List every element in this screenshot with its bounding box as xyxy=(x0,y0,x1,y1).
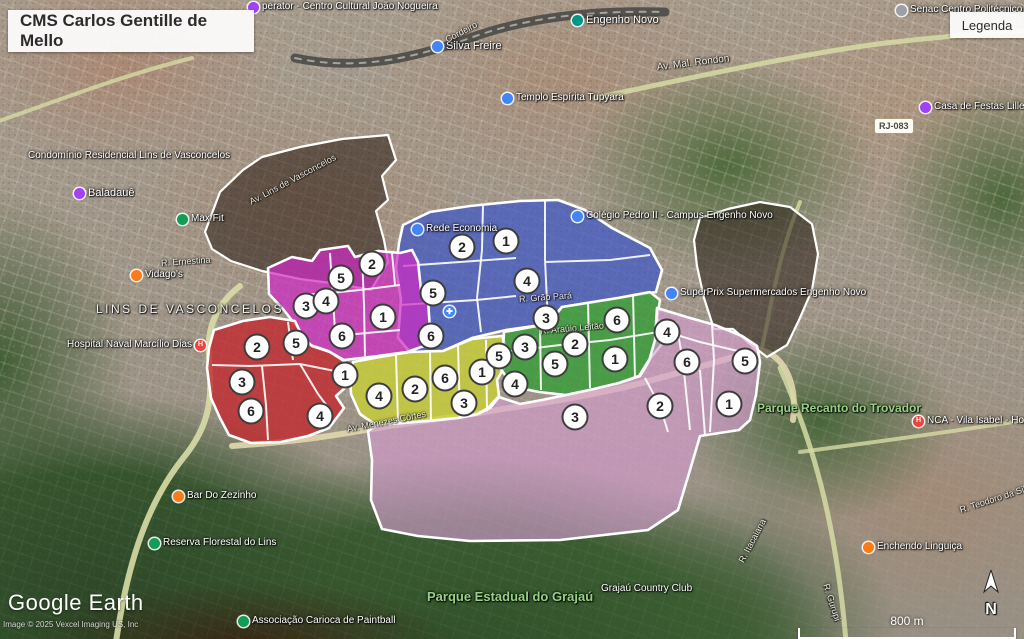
zone-number: 2 xyxy=(571,336,579,352)
zone-marker-green-4[interactable]: 4 xyxy=(503,372,528,397)
zone-marker-green-6[interactable]: 6 xyxy=(605,308,630,333)
zone-marker-pink-6[interactable]: 6 xyxy=(675,350,700,375)
zone-number: 2 xyxy=(656,398,664,414)
zone-number: 3 xyxy=(302,298,310,314)
zone-marker-red-1[interactable]: 1 xyxy=(333,363,358,388)
zone-number: 6 xyxy=(427,328,435,344)
zone-marker-blue-1[interactable]: 1 xyxy=(494,229,519,254)
zone-number: 2 xyxy=(411,381,419,397)
north-arrow[interactable]: N xyxy=(978,570,1004,619)
zone-marker-pink-2[interactable]: 2 xyxy=(648,394,673,419)
zone-marker-magenta-2[interactable]: 2 xyxy=(360,252,385,277)
zone-number: 1 xyxy=(379,309,387,325)
north-label: N xyxy=(978,601,1004,619)
legend-button[interactable]: Legenda xyxy=(950,12,1024,38)
zone-number: 4 xyxy=(375,388,383,404)
zone-number: 4 xyxy=(663,324,671,340)
zone-marker-red-6[interactable]: 6 xyxy=(239,399,264,424)
zone-number: 1 xyxy=(502,233,510,249)
zone-marker-yellow-2[interactable]: 2 xyxy=(403,377,428,402)
logo-earth: Earth xyxy=(89,590,144,615)
zone-marker-blue-5[interactable]: 5 xyxy=(421,281,446,306)
zone-number: 6 xyxy=(683,354,691,370)
map-title: CMS Carlos Gentille de Mello xyxy=(8,10,254,52)
scale-bar-bracket xyxy=(798,628,1016,639)
zone-marker-green-1[interactable]: 1 xyxy=(603,347,628,372)
zone-markers-layer: 123456123456123456123456123456123456 xyxy=(0,0,1024,639)
zone-number: 5 xyxy=(495,348,503,364)
zone-number: 2 xyxy=(458,239,466,255)
google-earth-logo: Google Earth xyxy=(8,590,144,616)
zone-number: 1 xyxy=(341,367,349,383)
zone-number: 6 xyxy=(441,370,449,386)
zone-number: 3 xyxy=(238,374,246,390)
zone-number: 3 xyxy=(521,339,529,355)
zone-marker-pink-1[interactable]: 1 xyxy=(717,392,742,417)
zone-number: 5 xyxy=(292,335,300,351)
zone-marker-pink-3[interactable]: 3 xyxy=(563,405,588,430)
zone-marker-green-2[interactable]: 2 xyxy=(563,332,588,357)
zone-marker-red-4[interactable]: 4 xyxy=(308,404,333,429)
zone-number: 5 xyxy=(429,285,437,301)
zone-number: 4 xyxy=(322,293,330,309)
zone-marker-blue-3[interactable]: 3 xyxy=(534,306,559,331)
zone-number: 3 xyxy=(542,310,550,326)
zone-marker-magenta-4[interactable]: 4 xyxy=(314,289,339,314)
satellite-map[interactable]: perator - Centro Cultural João NogueiraS… xyxy=(0,0,1024,639)
zone-number: 2 xyxy=(253,339,261,355)
zone-number: 6 xyxy=(338,328,346,344)
logo-google: Google xyxy=(8,590,82,615)
zone-marker-red-2[interactable]: 2 xyxy=(245,335,270,360)
zone-number: 5 xyxy=(741,353,749,369)
zone-marker-magenta-1[interactable]: 1 xyxy=(371,305,396,330)
zone-marker-pink-4[interactable]: 4 xyxy=(655,320,680,345)
zone-number: 4 xyxy=(523,273,531,289)
zone-marker-yellow-5[interactable]: 5 xyxy=(487,344,512,369)
zone-number: 1 xyxy=(478,364,486,380)
zone-number: 5 xyxy=(551,356,559,372)
zone-number: 4 xyxy=(511,376,519,392)
zone-marker-blue-6[interactable]: 6 xyxy=(419,324,444,349)
zone-marker-green-5[interactable]: 5 xyxy=(543,352,568,377)
zone-number: 3 xyxy=(571,409,579,425)
zone-marker-blue-2[interactable]: 2 xyxy=(450,235,475,260)
zone-marker-yellow-4[interactable]: 4 xyxy=(367,384,392,409)
zone-number: 3 xyxy=(460,395,468,411)
zone-marker-green-3[interactable]: 3 xyxy=(513,335,538,360)
north-arrow-icon xyxy=(982,570,1000,596)
map-title-text: CMS Carlos Gentille de Mello xyxy=(20,11,254,51)
zone-number: 5 xyxy=(337,270,345,286)
zone-number: 1 xyxy=(611,351,619,367)
zone-marker-blue-4[interactable]: 4 xyxy=(515,269,540,294)
zone-marker-yellow-3[interactable]: 3 xyxy=(452,391,477,416)
zone-marker-magenta-5[interactable]: 5 xyxy=(329,266,354,291)
zone-marker-red-3[interactable]: 3 xyxy=(230,370,255,395)
zone-marker-yellow-6[interactable]: 6 xyxy=(433,366,458,391)
zone-number: 6 xyxy=(247,403,255,419)
copyright-text: Image © 2025 Vexcel Imaging US, Inc xyxy=(3,620,138,629)
zone-number: 1 xyxy=(725,396,733,412)
zone-marker-red-5[interactable]: 5 xyxy=(284,331,309,356)
zone-marker-magenta-6[interactable]: 6 xyxy=(330,324,355,349)
zone-number: 6 xyxy=(613,312,621,328)
zone-number: 2 xyxy=(368,256,376,272)
zone-marker-pink-5[interactable]: 5 xyxy=(733,349,758,374)
zone-number: 4 xyxy=(316,408,324,424)
